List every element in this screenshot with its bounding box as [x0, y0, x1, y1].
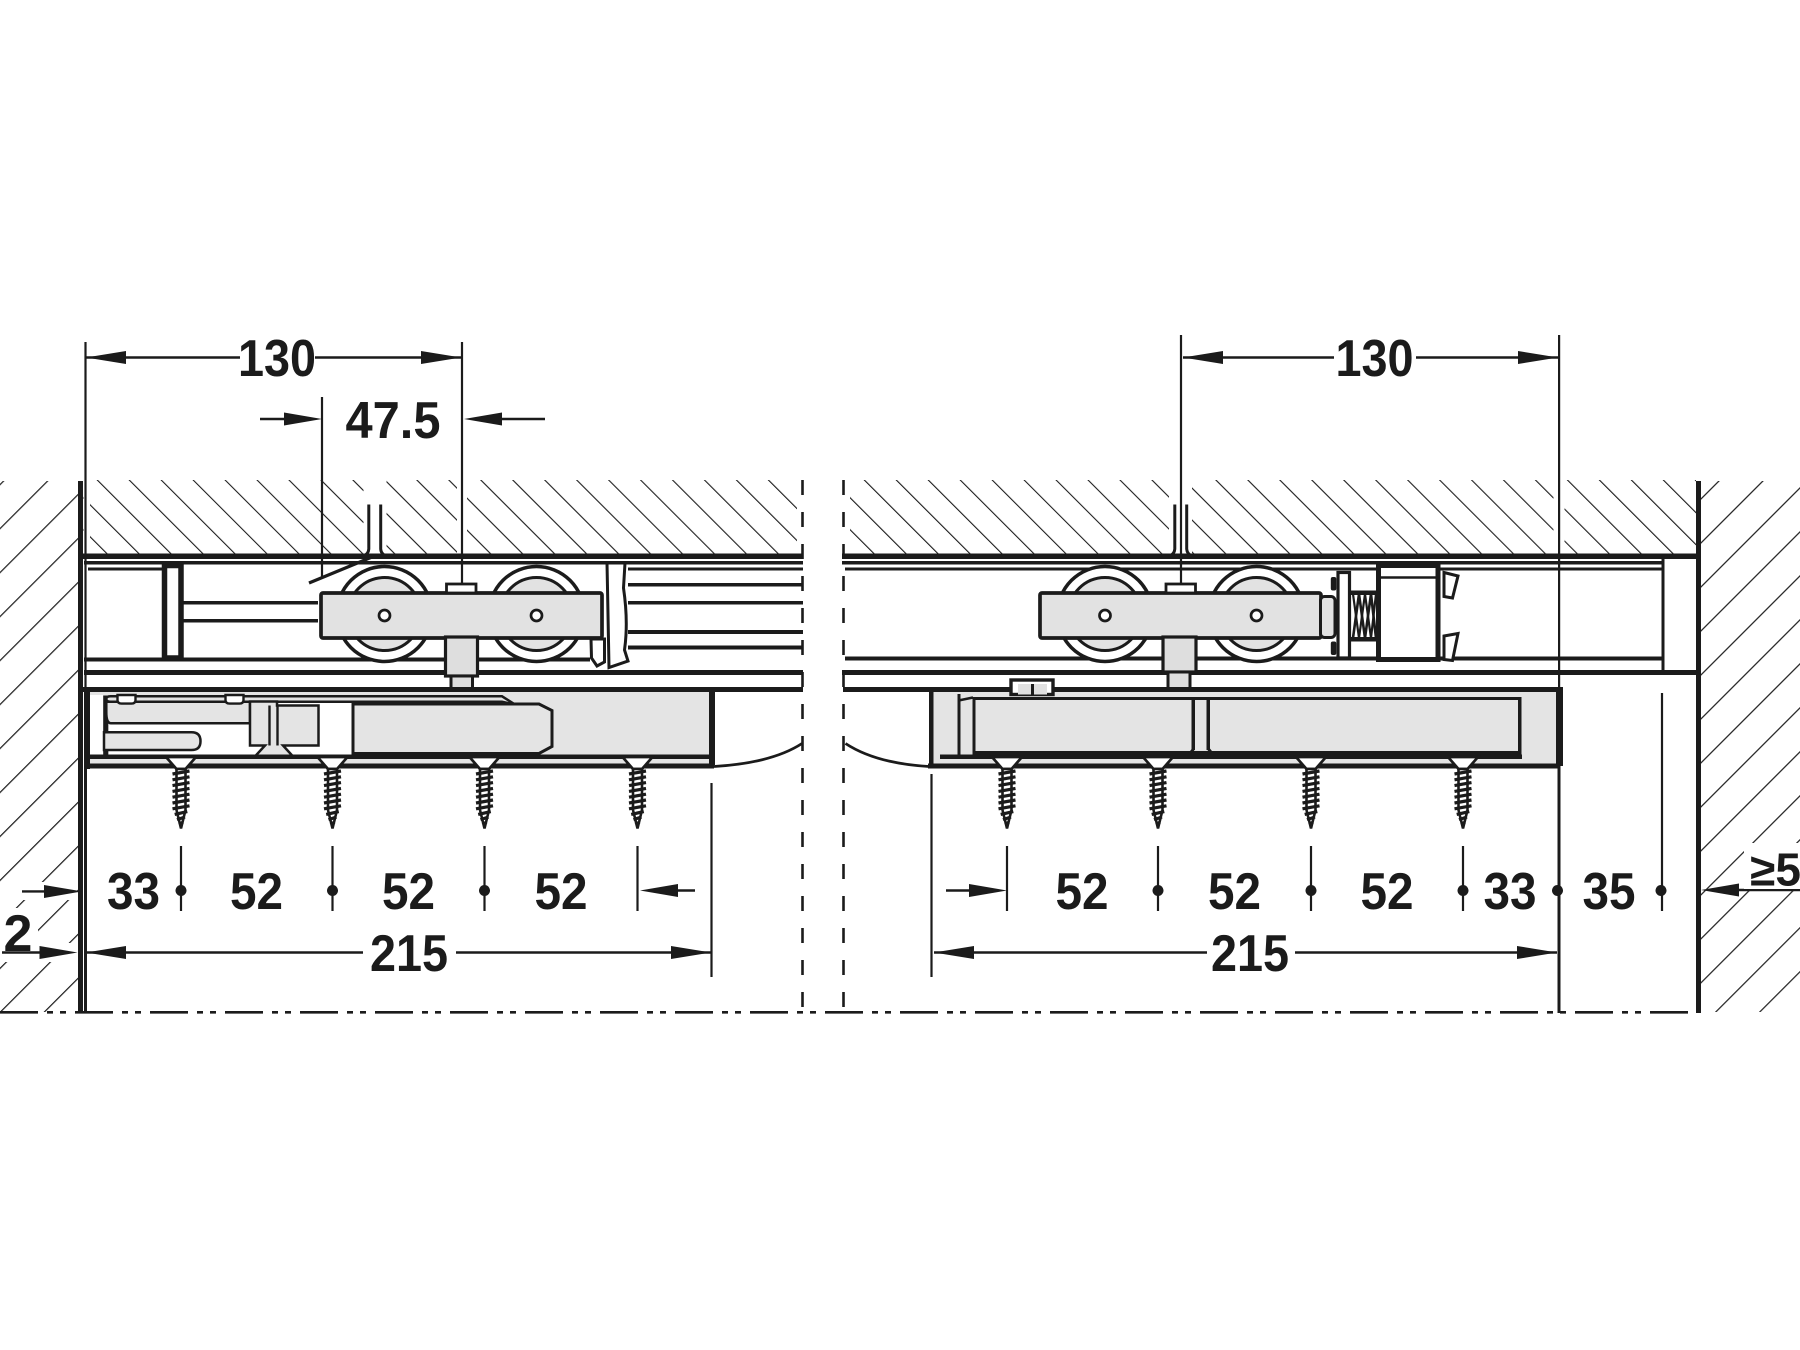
svg-text:33: 33 [107, 863, 160, 921]
svg-text:52: 52 [1056, 863, 1109, 921]
svg-text:215: 215 [370, 925, 448, 983]
svg-text:52: 52 [230, 863, 283, 921]
svg-text:52: 52 [535, 863, 588, 921]
svg-text:35: 35 [1583, 863, 1636, 921]
svg-text:130: 130 [238, 330, 316, 388]
svg-text:52: 52 [382, 863, 435, 921]
svg-text:215: 215 [1211, 925, 1289, 983]
svg-text:130: 130 [1336, 330, 1414, 388]
svg-text:52: 52 [1361, 863, 1414, 921]
svg-text:52: 52 [1208, 863, 1261, 921]
svg-text:≥5: ≥5 [1750, 844, 1800, 896]
svg-text:2: 2 [4, 905, 33, 963]
svg-text:33: 33 [1484, 863, 1537, 921]
svg-text:47.5: 47.5 [346, 392, 441, 450]
